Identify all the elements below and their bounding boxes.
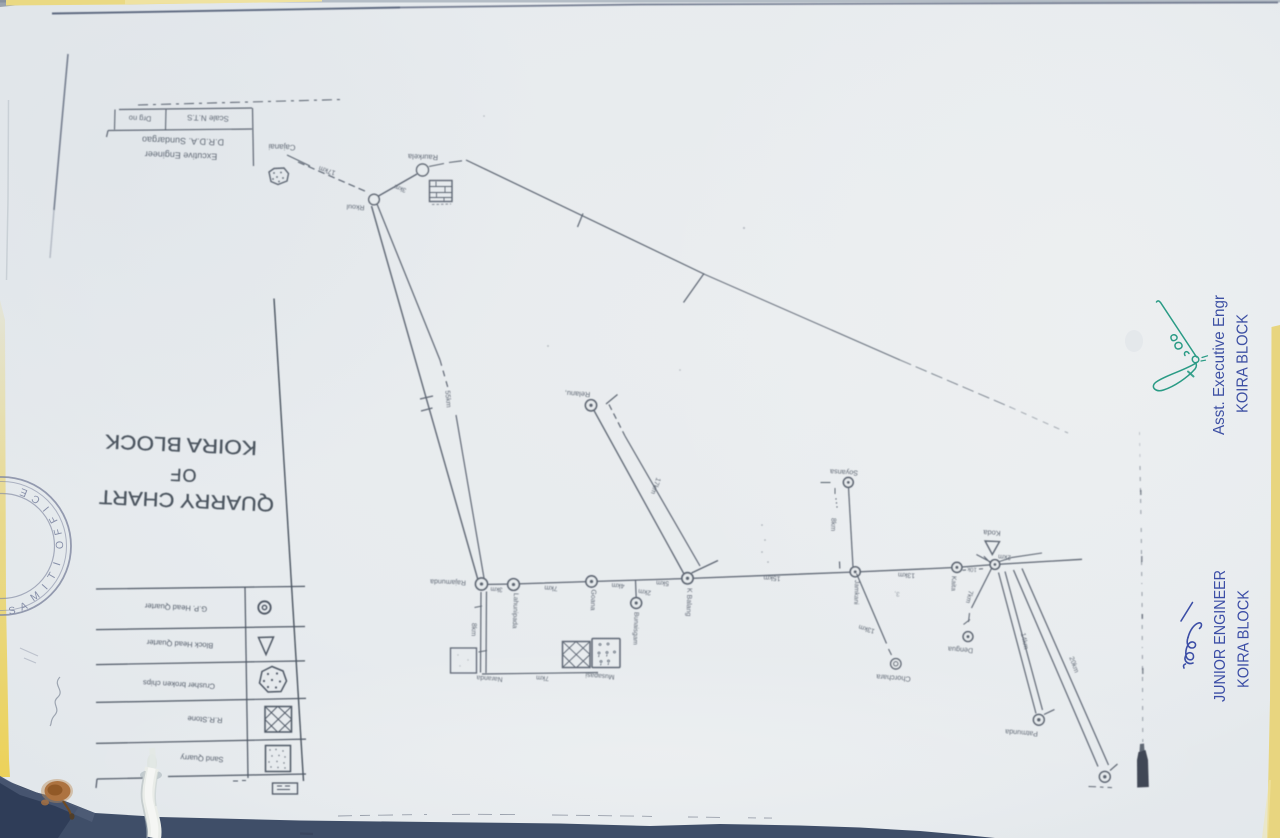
svg-text:Dengua: Dengua: [948, 645, 974, 656]
svg-text:Kaita: Kaita: [949, 576, 957, 592]
svg-text:7km: 7km: [536, 674, 550, 682]
svg-text:55km: 55km: [443, 390, 451, 408]
svg-text:13km: 13km: [898, 571, 916, 579]
svg-text:15km: 15km: [763, 574, 781, 582]
svg-text:JUNIOR ENGINEER: JUNIOR ENGINEER: [1212, 570, 1229, 702]
svg-text:Koda: Koda: [982, 528, 1001, 538]
svg-text:3,: 3,: [894, 590, 900, 597]
svg-text:Bunaisgam: Bunaisgam: [631, 612, 639, 646]
svg-text:OF: OF: [169, 464, 197, 485]
svg-text:Relanu,: Relanu,: [565, 389, 591, 399]
svg-text:Lahunipada: Lahunipada: [511, 593, 519, 629]
svg-text:7km: 7km: [544, 584, 558, 592]
svg-text:3km: 3km: [490, 585, 503, 593]
svg-text:KOIRA BLOCK: KOIRA BLOCK: [1235, 314, 1252, 413]
svg-text:Asst. Executive Engr: Asst. Executive Engr: [1211, 294, 1228, 435]
svg-text:Jamkani: Jamkani: [852, 580, 860, 605]
svg-text:Drg no: Drg no: [129, 114, 152, 124]
svg-text:10k: 10k: [966, 565, 977, 572]
svg-text:KOIRA BLOCK: KOIRA BLOCK: [1236, 590, 1253, 688]
svg-text:Soyansa: Soyansa: [830, 467, 858, 477]
svg-text:O: O: [54, 541, 66, 549]
svg-text:2km: 2km: [998, 553, 1012, 561]
svg-text:Cajanai: Cajanai: [268, 142, 296, 152]
svg-text:Rajamunda: Rajamunda: [430, 577, 466, 585]
svg-text:Rkoul: Rkoul: [346, 203, 365, 211]
svg-text:5km: 5km: [656, 579, 670, 587]
svg-text:Raurkela: Raurkela: [407, 152, 438, 162]
svg-text:8km: 8km: [470, 623, 477, 637]
svg-text:8km: 8km: [829, 518, 836, 532]
svg-text:K Balang: K Balang: [685, 588, 693, 617]
svg-text:Scale N.T.S: Scale N.T.S: [187, 113, 229, 123]
svg-text:4km: 4km: [611, 581, 625, 589]
svg-text:R.R.Stone: R.R.Stone: [187, 714, 222, 725]
svg-text:Goana: Goana: [589, 589, 597, 610]
